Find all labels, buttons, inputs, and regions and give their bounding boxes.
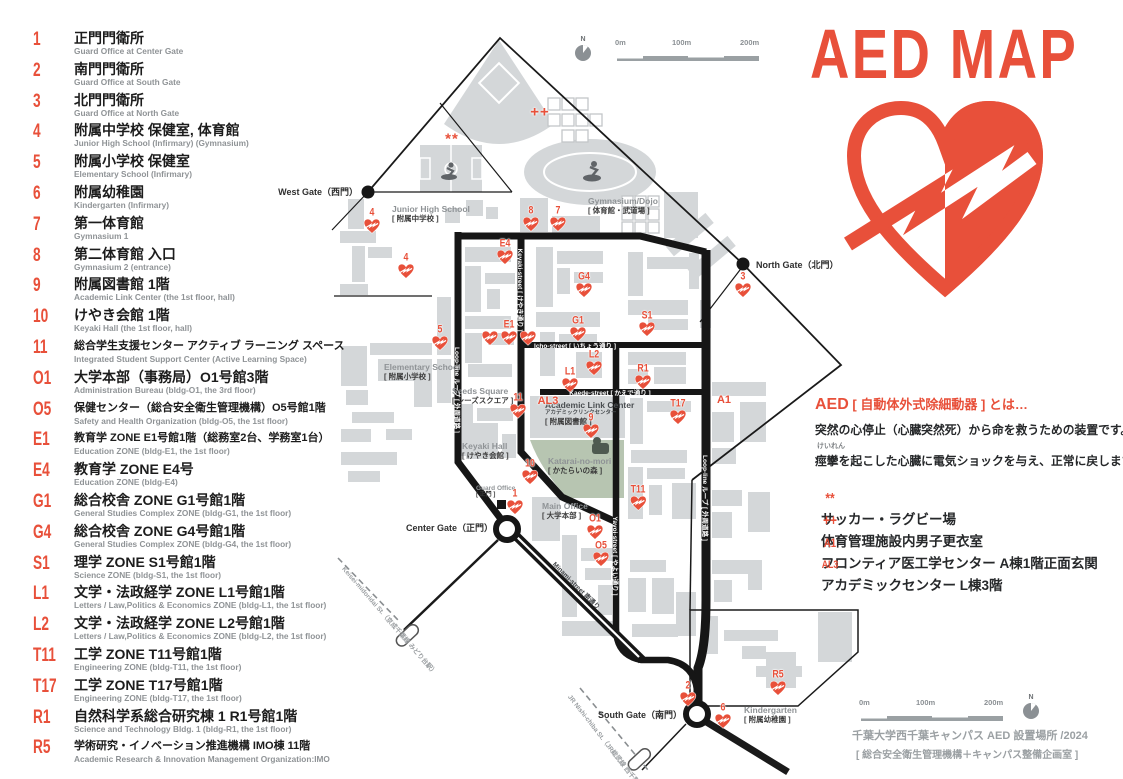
legend-code: T17	[33, 677, 63, 696]
aed-heart-icons	[432, 336, 449, 352]
legend-subtitle: Engineering ZONE (bldg-T17, the 1st floo…	[74, 693, 335, 703]
aed-heart-icons	[523, 217, 540, 233]
legend-title: 正門門衛所	[74, 30, 335, 46]
place-name-en: Elementary School	[384, 362, 461, 372]
legend-subtitle: Guard Office at Center Gate	[74, 46, 335, 56]
aed-heart-icon	[507, 500, 524, 516]
map-place-label: Katarai-no-mori[ かたらいの森 ]	[548, 456, 611, 475]
legend-subtitle: General Studies Complex ZONE (bldg-G4, t…	[74, 539, 335, 549]
aed-note-label: アカデミックセンター L棟3階	[821, 574, 1003, 594]
aed-heart-icons	[635, 375, 652, 391]
aed-marker-code: 8	[524, 206, 538, 217]
aed-marker-code: E1	[487, 320, 531, 331]
legend-subtitle: Gymnasium 1	[74, 231, 335, 241]
aed-marker-code: 9	[584, 413, 598, 424]
aed-heart-icon	[587, 525, 604, 541]
aed-map-poster: 1正門門衛所Guard Office at Center Gate2南門門衛所G…	[0, 0, 1123, 779]
legend-code: 6	[33, 184, 63, 203]
legend-code: R5	[33, 738, 63, 757]
legend-subtitle: Gymnasium 2 (entrance)	[74, 262, 335, 272]
aed-note-AL3: AL3アカデミックセンター L棟3階	[815, 556, 1003, 594]
legend-item-E4: E4教育学 ZONE E4号Education ZONE (bldg-E4)	[33, 461, 335, 492]
aed-marker-L1: L1	[562, 367, 579, 394]
aed-heart-icon	[432, 336, 449, 352]
legend-title: 総合学生支援センター アクティブ ラーニング スペース	[74, 338, 335, 354]
aed-heart-icon	[576, 283, 593, 299]
aed-heart-icons	[680, 692, 697, 708]
legend-code: 4	[33, 122, 63, 141]
legend-title: 文学・法政経学 ZONE L2号館1階	[74, 615, 335, 631]
aed-heart-icons	[735, 283, 752, 299]
legend-title: 自然科学系総合研究棟 1 R1号館1階	[74, 708, 335, 724]
legend-subtitle: Keyaki Hall (the 1st floor, hall)	[74, 323, 335, 333]
map-code-**: **	[445, 131, 459, 148]
legend-title: 総合校舎 ZONE G4号館1階	[74, 523, 335, 539]
aed-marker-11: 11	[510, 393, 527, 420]
aed-marker-8: 8	[523, 206, 540, 233]
scale-label-200m: 200m	[740, 38, 759, 47]
aed-heart-icon	[550, 217, 567, 233]
aed-marker-code: L1	[563, 367, 577, 378]
aed-marker-T11: T11	[629, 485, 647, 512]
legend-code: S1	[33, 554, 63, 573]
aed-marker-4: 4	[398, 253, 415, 280]
aed-heart-icon	[364, 219, 381, 235]
legend-item-1: 1正門門衛所Guard Office at Center Gate	[33, 30, 335, 61]
legend-code: L1	[33, 584, 63, 603]
legend-subtitle: Science ZONE (bldg-S1, the 1st floor)	[74, 570, 335, 580]
aed-marker-code: L2	[587, 350, 601, 361]
aed-heart-icons	[770, 681, 787, 697]
legend-title: 理学 ZONE S1号館1階	[74, 554, 335, 570]
place-name-ja: [ 体育館・武道場 ]	[588, 206, 658, 215]
legend-title: けやき会館 1階	[74, 307, 335, 323]
aed-heart-icon	[680, 692, 697, 708]
aed-marker-code: O1	[588, 514, 602, 525]
aed-heart-icons	[497, 250, 514, 266]
legend-item-T11: T11工学 ZONE T11号館1階Engineering ZONE (bldg…	[33, 646, 335, 677]
aed-info-body2: 痙攣を起こした心臓に電気ショックを与え、正常に戻します。	[815, 452, 1123, 469]
aed-marker-code: G4	[577, 272, 591, 283]
legend-item-S1: S1理学 ZONE S1号館1階Science ZONE (bldg-S1, t…	[33, 554, 335, 585]
legend-code: 3	[33, 92, 63, 111]
scale-bar-top: 0m100m200m	[610, 38, 780, 62]
legend-subtitle: Education ZONE (bldg-E1, the 1st floor)	[74, 446, 335, 456]
aed-marker-code: R5	[771, 670, 785, 681]
aed-marker-code: 10	[523, 459, 537, 470]
street-label: Yayoi-street [ やよい通り ]	[611, 516, 621, 595]
aed-info-heading-code: AED	[815, 396, 849, 413]
gate-label: Center Gate（正門）	[406, 521, 493, 534]
aed-marker-O1: O1	[587, 514, 604, 541]
legend-code: O5	[33, 400, 63, 419]
legend-item-2: 2南門門衛所Guard Office at South Gate	[33, 61, 335, 92]
aed-heart-icons	[593, 552, 610, 568]
aed-heart-icons	[570, 327, 587, 343]
aed-marker-code: 4	[399, 253, 413, 264]
credit-line1: 千葉大学西千葉キャンパス AED 設置場所 /2024	[852, 727, 1088, 743]
legend-title: 北門門衛所	[74, 92, 335, 108]
legend-item-8: 8第二体育館 入口Gymnasium 2 (entrance)	[33, 246, 335, 277]
poster-title: AED MAP	[810, 14, 1078, 94]
aed-heart-icons	[639, 322, 656, 338]
legend-code: 2	[33, 61, 63, 80]
legend-title: 大学本部（事務局）O1号館3階	[74, 369, 335, 385]
legend-subtitle: Integrated Student Support Center (Activ…	[74, 354, 335, 364]
aed-heart-icon	[770, 681, 787, 697]
compass-icon: N	[572, 36, 594, 66]
aed-marker-code: R1	[636, 364, 650, 375]
legend-item-3: 3北門門衛所Guard Office at North Gate	[33, 92, 335, 123]
legend-subtitle: Science and Technology Bldg. 1 (bldg-R1,…	[74, 724, 335, 734]
map-place-label: Junior High School[ 附属中学校 ]	[392, 204, 470, 223]
aed-heart-icon	[523, 217, 540, 233]
aed-info-heading-rest: [ 自動体外式除細動器 ] とは…	[849, 397, 1028, 412]
aed-marker-G1: G1	[570, 316, 587, 343]
aed-marker-code: 3	[736, 272, 750, 283]
map-code-AL3: AL3	[538, 395, 559, 407]
place-name-ja: [ 附属幼稚園 ]	[744, 715, 797, 724]
aed-note-code: AL3	[818, 559, 842, 571]
scale-bar-graphic	[861, 709, 1003, 727]
north-gate-dot	[737, 258, 750, 271]
place-name-ja: [ 大学本部 ]	[542, 511, 588, 520]
legend-subtitle: Guard Office at South Gate	[74, 77, 335, 87]
aed-heart-icons	[669, 410, 688, 426]
legend-code: G4	[33, 523, 63, 542]
aed-heart-logo	[842, 98, 1048, 298]
aed-heart-icon	[497, 250, 514, 266]
aed-marker-1: 1	[507, 489, 524, 516]
place-name-ja: [ 附属中学校 ]	[392, 214, 470, 223]
aed-heart-icons	[586, 361, 603, 377]
aed-heart-icon	[562, 378, 579, 394]
legend-item-O1: O1大学本部（事務局）O1号館3階Administration Bureau (…	[33, 369, 335, 400]
aed-heart-icons	[715, 714, 732, 730]
legend-code: 8	[33, 246, 63, 265]
aed-heart-icon	[629, 496, 646, 512]
legend-title: 教育学 ZONE E1号館1階（総務室2台、学務室1台）	[74, 430, 335, 446]
map-place-label: Elementary School[ 附属小学校 ]	[384, 362, 461, 381]
aed-marker-code: E4	[498, 239, 512, 250]
credit-line2: [ 総合安全衛生管理機構＋キャンパス整備企画室 ]	[856, 746, 1078, 761]
legend-item-G4: G4総合校舎 ZONE G4号館1階General Studies Comple…	[33, 523, 335, 554]
legend-item-9: 9附属図書館 1階Academic Link Center (the 1st f…	[33, 276, 335, 307]
legend-title: 学術研究・イノベーション推進機構 IMO棟 11階	[74, 738, 335, 754]
legend-code: G1	[33, 492, 63, 511]
forest-icon	[592, 437, 609, 454]
scale-bar-graphic	[617, 49, 759, 67]
aed-marker-code: 4	[365, 208, 379, 219]
aed-heart-icon	[570, 327, 587, 343]
aed-marker-code: T11	[631, 485, 646, 496]
place-name-ja: [ 附属小学校 ]	[384, 372, 461, 381]
scale-label-0m: 0m	[859, 698, 870, 707]
aed-marker-code: G1	[571, 316, 585, 327]
legend-title: 附属図書館 1階	[74, 276, 335, 292]
legend-title: 工学 ZONE T17号館1階	[74, 677, 335, 693]
legend-title: 保健センター（総合安全衛生管理機構）O5号館1階	[74, 400, 335, 416]
aed-note-code: ++	[818, 512, 842, 529]
legend-title: 南門門衛所	[74, 61, 335, 77]
aed-marker-code: 11	[511, 393, 525, 404]
map-place-label: Main Office[ 大学本部 ]	[542, 501, 588, 520]
aed-info-heading: AED [ 自動体外式除細動器 ] とは…	[815, 394, 1028, 414]
place-name-en: Kindergarten	[744, 705, 797, 715]
scale-label-200m: 200m	[984, 698, 1003, 707]
legend-code: T11	[33, 646, 63, 665]
aed-marker-10: 10	[522, 459, 539, 486]
place-name-en: Main Office	[542, 501, 588, 511]
legend-code: 9	[33, 276, 63, 295]
aed-heart-icons	[583, 424, 600, 440]
aed-heart-icon	[501, 331, 518, 347]
aed-heart-icons	[482, 331, 537, 347]
scale-bar-rule	[861, 714, 1003, 722]
legend-title: 第二体育館 入口	[74, 246, 335, 262]
aed-heart-icons	[587, 525, 604, 541]
legend-item-L1: L1文学・法政経学 ZONE L1号館1階Letters / Law,Polit…	[33, 584, 335, 615]
aed-marker-5: 5	[432, 325, 449, 352]
scale-label-100m: 100m	[672, 38, 691, 47]
aed-marker-R1: R1	[635, 364, 652, 391]
place-name-en: Junior High School	[392, 204, 470, 214]
legend-item-G1: G1総合校舎 ZONE G1号館1階General Studies Comple…	[33, 492, 335, 523]
street-label: Loop-line ループ [ 外周道路 ]	[701, 455, 711, 541]
aed-heart-icons	[550, 217, 567, 233]
map-place-label: Kindergarten[ 附属幼稚園 ]	[744, 705, 797, 724]
legend-title: 附属中学校 保健室, 体育館	[74, 122, 335, 138]
aed-heart-icons	[510, 404, 527, 420]
legend-title: 第一体育館	[74, 215, 335, 231]
legend-subtitle: Letters / Law,Politics & Economics ZONE …	[74, 600, 335, 610]
aed-note-code: A1	[818, 536, 842, 550]
gate-label: West Gate（西門）	[278, 185, 358, 198]
legend-subtitle: Academic Link Center (the 1st floor, hal…	[74, 292, 335, 302]
legend-subtitle: Letters / Law,Politics & Economics ZONE …	[74, 631, 335, 641]
aed-heart-icon	[510, 404, 527, 420]
aed-note-code: **	[818, 490, 842, 507]
aed-marker-4: 4	[364, 208, 381, 235]
legend-code: L2	[33, 615, 63, 634]
aed-marker-code: 6	[716, 703, 730, 714]
place-name-en: Katarai-no-mori	[548, 456, 611, 466]
legend-subtitle: Guard Office at North Gate	[74, 108, 335, 118]
aed-marker-code: 2	[681, 681, 695, 692]
aed-heart-icon	[670, 410, 687, 426]
map-place-label: Keyaki Hall[ けやき会館 ]	[462, 441, 509, 460]
gate-label: North Gate（北門）	[756, 258, 839, 271]
legend-subtitle: Administration Bureau (bldg-O1, the 3rd …	[74, 385, 335, 395]
aed-heart-icon	[639, 322, 656, 338]
aed-heart-icon	[586, 361, 603, 377]
aed-marker-code: T17	[670, 399, 685, 410]
aed-marker-code: 5	[433, 325, 447, 336]
aed-heart-icons	[562, 378, 579, 394]
legend-code: 11	[33, 338, 63, 357]
aed-marker-G4: G4	[576, 272, 593, 299]
place-name-ja: [ けやき会館 ]	[462, 451, 509, 460]
legend-list: 1正門門衛所Guard Office at Center Gate2南門門衛所G…	[33, 30, 335, 769]
legend-code: 10	[33, 307, 63, 326]
aed-marker-3: 3	[735, 272, 752, 299]
aed-marker-code: O5	[594, 541, 608, 552]
aed-marker-O5: O5	[593, 541, 610, 568]
legend-item-10: 10けやき会館 1階Keyaki Hall (the 1st floor, ha…	[33, 307, 335, 338]
legend-title: 附属小学校 保健室	[74, 153, 335, 169]
aed-heart-icons	[576, 283, 593, 299]
map-code-++: ++	[530, 104, 550, 121]
west-gate-dot	[362, 186, 375, 199]
legend-code: O1	[33, 369, 63, 388]
legend-subtitle: General Studies Complex ZONE (bldg-G1, t…	[74, 508, 335, 518]
aed-heart-icon	[522, 470, 539, 486]
aed-marker-E4: E4	[497, 239, 514, 266]
aed-marker-R5: R5	[770, 670, 787, 697]
legend-title: 文学・法政経学 ZONE L1号館1階	[74, 584, 335, 600]
aed-marker-T17: T17	[669, 399, 688, 426]
scale-label-100m: 100m	[916, 698, 935, 707]
legend-subtitle: Safety and Health Organization (bldg-O5,…	[74, 416, 335, 426]
legend-item-5: 5附属小学校 保健室Elementary School (Infirmary)	[33, 153, 335, 184]
aed-heart-icon	[583, 424, 600, 440]
aed-heart-icon	[520, 331, 537, 347]
aed-heart-icon	[593, 552, 610, 568]
legend-subtitle: Kindergarten (Infirmary)	[74, 200, 335, 210]
legend-item-R1: R1自然科学系総合研究棟 1 R1号館1階Science and Technol…	[33, 708, 335, 739]
legend-item-11: 11総合学生支援センター アクティブ ラーニング スペースIntegrated …	[33, 338, 335, 369]
aed-heart-icons	[398, 264, 415, 280]
legend-subtitle: Academic Research & Innovation Managemen…	[74, 754, 335, 764]
aed-marker-S1: S1	[639, 311, 656, 338]
scale-label-0m: 0m	[615, 38, 626, 47]
aed-marker-L2: L2	[586, 350, 603, 377]
legend-item-4: 4附属中学校 保健室, 体育館Junior High School (Infir…	[33, 122, 335, 153]
place-name-en: Gymnasium/Dojo	[588, 196, 658, 206]
center-gate-roundabout	[496, 518, 518, 540]
legend-subtitle: Education ZONE (bldg-E4)	[74, 477, 335, 487]
legend-subtitle: Engineering ZONE (bldg-T11, the 1st floo…	[74, 662, 335, 672]
aed-heart-icon	[482, 331, 499, 347]
legend-item-O5: O5保健センター（総合安全衛生管理機構）O5号館1階Safety and Hea…	[33, 400, 335, 431]
legend-title: 工学 ZONE T11号館1階	[74, 646, 335, 662]
street-label: Loop-line ループ [ 外周道路 ]	[453, 347, 463, 433]
legend-item-E1: E1教育学 ZONE E1号館1階（総務室2台、学務室1台）Education …	[33, 430, 335, 461]
aed-marker-code: 1	[508, 489, 522, 500]
aed-info-furigana: けいれん	[817, 441, 845, 451]
place-name-en: Keyaki Hall	[462, 441, 509, 451]
legend-code: E4	[33, 461, 63, 480]
aed-heart-icons	[364, 219, 381, 235]
legend-code: 1	[33, 30, 63, 49]
aed-heart-icon	[635, 375, 652, 391]
legend-subtitle: Junior High School (Infirmary) (Gymnasiu…	[74, 138, 335, 148]
scale-bar-bottom: 0m100m200m	[854, 698, 1024, 722]
legend-code: E1	[33, 430, 63, 449]
place-name-ja: [ かたらいの森 ]	[548, 466, 611, 475]
guard-office-building	[497, 500, 506, 509]
aed-heart-icons	[522, 470, 539, 486]
legend-code: 5	[33, 153, 63, 172]
legend-code: R1	[33, 708, 63, 727]
aed-marker-2: 2	[680, 681, 697, 708]
aed-marker-code: 7	[551, 206, 565, 217]
map-place-label: Gymnasium/Dojo[ 体育館・武道場 ]	[588, 196, 658, 215]
legend-subtitle: Elementary School (Infirmary)	[74, 169, 335, 179]
aed-heart-icons	[629, 496, 647, 512]
legend-title: 教育学 ZONE E4号	[74, 461, 335, 477]
legend-item-T17: T17工学 ZONE T17号館1階Engineering ZONE (bldg…	[33, 677, 335, 708]
aed-info-body1: 突然の心停止（心臓突然死）から命を救うための装置です。	[815, 421, 1123, 438]
aed-marker-code: S1	[640, 311, 654, 322]
map-code-A1: A1	[717, 394, 731, 406]
aed-marker-E1: E1	[482, 320, 537, 347]
legend-title: 総合校舎 ZONE G1号館1階	[74, 492, 335, 508]
scale-bar-rule	[617, 54, 759, 62]
aed-marker-6: 6	[715, 703, 732, 730]
aed-heart-icon	[735, 283, 752, 299]
aed-heart-icon	[398, 264, 415, 280]
aed-marker-9: 9	[583, 413, 600, 440]
legend-code: 7	[33, 215, 63, 234]
aed-marker-7: 7	[550, 206, 567, 233]
legend-item-7: 7第一体育館Gymnasium 1	[33, 215, 335, 246]
legend-item-L2: L2文学・法政経学 ZONE L2号館1階Letters / Law,Polit…	[33, 615, 335, 646]
legend-item-R5: R5学術研究・イノベーション推進機構 IMO棟 11階Academic Rese…	[33, 738, 335, 769]
gate-label: South Gate（南門）	[598, 708, 682, 721]
aed-heart-icon	[715, 714, 732, 730]
aed-heart-icons	[507, 500, 524, 516]
